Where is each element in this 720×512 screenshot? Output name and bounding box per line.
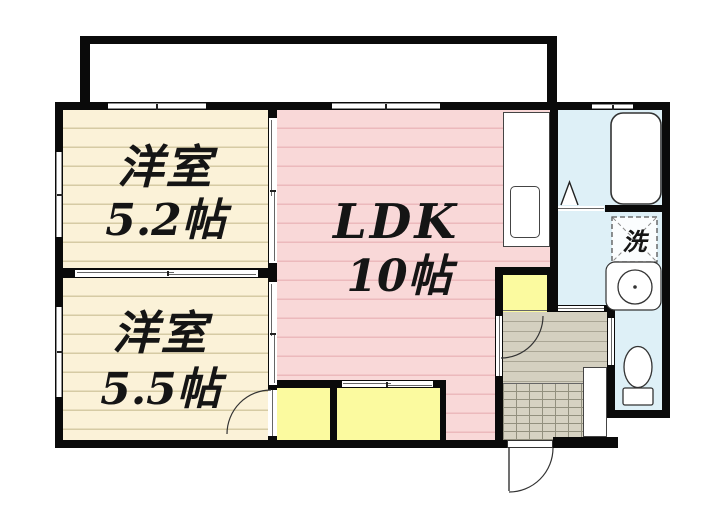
sliding-partition-rooms <box>75 270 258 277</box>
washing-machine-label: 洗 <box>612 217 657 262</box>
floor-plan: 洋室 5.2帖 洋室 5.5帖 LDK 10帖 洗 <box>0 0 720 512</box>
wall-exterior-right <box>662 102 670 418</box>
door-gap-western2-closet <box>268 390 277 436</box>
balcony-wall-right <box>547 36 557 110</box>
door-gap-bathroom <box>558 206 604 211</box>
wall-bath-washroom <box>605 205 662 212</box>
window-icon-western1 <box>108 103 206 109</box>
door-swing-entrance <box>509 448 553 492</box>
room-western1-area: 5.2帖 <box>63 190 268 242</box>
wall-exterior-bottom-right <box>553 437 618 448</box>
balcony-wall-left <box>80 36 90 110</box>
sliding-door-western2-ldk <box>269 282 277 385</box>
door-gap-toilet <box>608 318 614 365</box>
room-western2-area: 5.5帖 <box>58 358 263 412</box>
closet-western2 <box>277 388 330 440</box>
shoe-cabinet <box>583 367 607 437</box>
balcony-wall-top <box>80 36 557 44</box>
window-icon-ldk <box>332 103 440 109</box>
sliding-door-western1-ldk <box>269 118 277 263</box>
wall-toilet-bottom <box>607 410 670 418</box>
room-western2-label: 洋室 <box>58 301 263 359</box>
window-icon-bathroom <box>592 104 633 109</box>
window-icon-western1-left <box>56 152 62 237</box>
wall-closet2-right <box>440 380 446 440</box>
wall-closet1-top <box>272 380 337 388</box>
wall-closet-divider <box>330 380 337 440</box>
toilet-room-floor <box>615 312 662 410</box>
door-gap-washroom <box>558 306 604 311</box>
sliding-door-closet-ldk <box>342 381 433 387</box>
bathroom-floor <box>558 110 662 212</box>
wall-exterior-bottom-left <box>55 440 507 448</box>
entrance-step-line <box>503 383 583 384</box>
closet-hallway-front-line <box>503 310 547 311</box>
room-ldk-area: 10帖 <box>277 246 521 298</box>
door-gap-ldk-hallway <box>496 316 502 376</box>
entrance-tile-floor <box>503 383 583 440</box>
closet-ldk <box>337 388 440 440</box>
door-gap-entrance <box>507 440 553 448</box>
